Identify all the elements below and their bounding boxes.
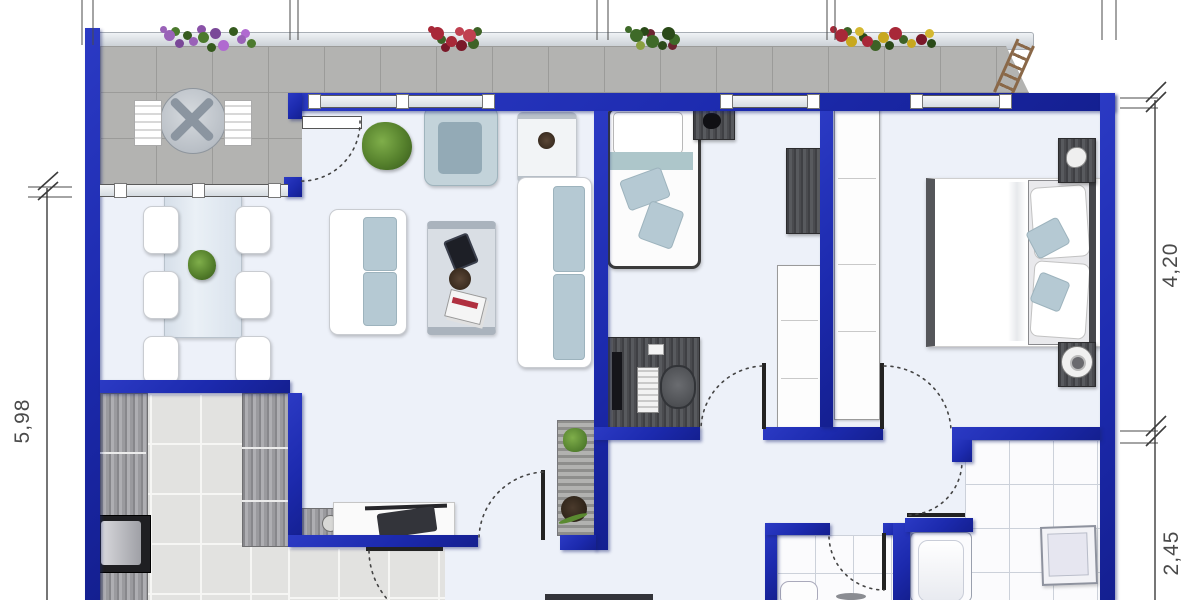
wall-kids-bottom (594, 427, 700, 440)
kids-closet (777, 265, 822, 429)
dining-chair (235, 206, 271, 254)
window-mullion (192, 183, 205, 198)
wall-wc-right (893, 523, 910, 600)
wc-door-leaf (882, 533, 886, 590)
window-mullion (999, 94, 1012, 109)
duvet-fold (1008, 182, 1026, 341)
entry-door (545, 594, 653, 600)
wall-hall-right (952, 427, 1100, 440)
monitor-icon (612, 352, 622, 410)
wall-kids-master (820, 111, 833, 427)
bathtub-inner (918, 540, 964, 600)
dimension-label-left: 5,98 (11, 391, 37, 451)
window-mullion (308, 94, 321, 109)
paper-icon (648, 344, 664, 355)
wall-terrace-living-top (288, 93, 302, 119)
speaker-center-icon (1070, 355, 1086, 371)
kitchen-floor (288, 547, 445, 600)
window-mullion (114, 183, 127, 198)
keyboard-icon (637, 367, 659, 413)
living-hall-door-leaf (541, 470, 545, 540)
toilet-icon (780, 581, 818, 600)
dimension-label-right-bottom: 2,45 (1160, 523, 1186, 583)
bowl-icon (449, 268, 471, 290)
terrace-door-leaf (302, 116, 362, 129)
wall-left-outer (85, 28, 100, 600)
flower-box (625, 26, 679, 58)
wall-kitchen-dining (100, 380, 290, 393)
kids-door-leaf (762, 363, 766, 429)
desk-chair (660, 365, 696, 409)
wall-right-outer (1100, 93, 1115, 600)
flowers-icon (160, 26, 167, 33)
sofa-cushion (553, 186, 585, 272)
potted-plant-icon (362, 122, 412, 170)
window (722, 95, 818, 108)
sofa-cushion (363, 272, 397, 326)
dining-chair (143, 336, 179, 384)
sink-icon (836, 593, 866, 600)
wall-kitchen-living (288, 393, 302, 543)
master-closet (834, 108, 880, 420)
wall-living-kids (594, 111, 608, 550)
flowers-icon (625, 26, 632, 33)
window-mullion (720, 94, 733, 109)
window-dining (100, 184, 288, 197)
oven-front (101, 521, 141, 565)
kitchen-cabinet-column (242, 393, 290, 547)
window-mullion (910, 94, 923, 109)
dining-chair (235, 271, 271, 319)
window (912, 95, 1010, 108)
dresser (786, 148, 823, 234)
window-mullion (482, 94, 495, 109)
wall-living-south (288, 535, 478, 547)
wall-shelf-stub (560, 535, 596, 550)
table-plant-icon (188, 250, 216, 280)
flower-box (428, 26, 482, 58)
floor-plan: 5,98 4,20 2,45 (0, 0, 1200, 600)
headboard-bar (1089, 178, 1096, 345)
window-mullion (807, 94, 820, 109)
armchair-seat (438, 122, 482, 174)
terrace-bench (224, 100, 252, 146)
bed-blanket-band (610, 152, 693, 170)
dining-chair (143, 271, 179, 319)
dining-chair (235, 336, 271, 384)
flowers-icon (428, 26, 435, 33)
terrace-bench (134, 100, 162, 146)
master-door-leaf (880, 363, 884, 429)
wall-hall-mid (763, 427, 883, 440)
flower-box (830, 26, 934, 58)
washing-machine-front (1047, 532, 1088, 576)
sofa-cushion (553, 274, 585, 360)
sofa-cushion (363, 217, 397, 271)
bath-door-leaf (907, 513, 965, 517)
cabinet-shelf-line (100, 452, 146, 454)
bed-pillow (613, 112, 683, 154)
cabinet-shelf-line (242, 447, 288, 449)
shelf-plant-icon (563, 428, 587, 452)
dining-chair (143, 206, 179, 254)
dimension-label-right-top: 4,20 (1159, 235, 1185, 295)
window-mullion (268, 183, 281, 198)
wall-bath-stub (952, 440, 972, 462)
side-table-plant-icon (538, 132, 555, 149)
wall-wc-top-left (765, 523, 830, 535)
window (310, 95, 493, 108)
flower-box (160, 26, 256, 58)
cabinet-shelf-line (242, 500, 288, 502)
kitchen-entry-door-leaf (366, 547, 443, 551)
wall-bath-corner (905, 518, 973, 532)
flowers-icon (830, 26, 837, 33)
window-mullion (396, 94, 409, 109)
